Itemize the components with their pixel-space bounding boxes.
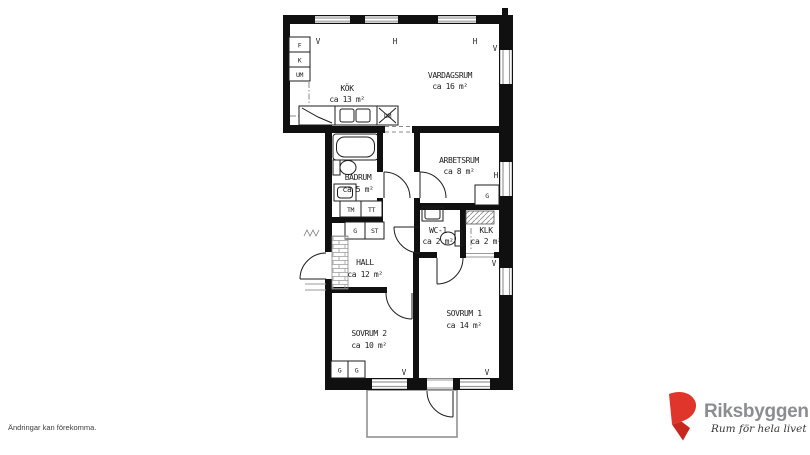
arbetsrum-wardrobe-label: G [485,192,489,200]
window-vardagsrum-1 [365,16,398,23]
room-area: ca 2 m² [471,237,502,246]
dryer-label: TT [368,206,376,214]
window-letter: V [493,44,498,53]
washer-label: TM [347,206,355,214]
kitchen-fixtures: F K UM DM [289,37,398,125]
door-sovrum1 [437,258,463,284]
entry-opening [325,252,333,279]
klk-shelf-icon [466,211,494,224]
window-vardagsrum-2 [438,16,476,23]
room-area: ca 14 m² [446,321,481,330]
window-letter: H [473,37,478,46]
stair-shaft-hatch [332,236,348,289]
room-name: KLK [479,226,493,235]
door-entry [300,253,326,290]
room-sovrum1: SOVRUM 1 ca 14 m² [446,309,482,330]
riksbyggen-logo-mark-icon [669,392,696,441]
hall-cleaning-closet-label: ST [371,227,379,235]
door-sovrum2 [386,293,412,319]
room-kok: KÖK ca 13 m² [329,83,364,104]
room-area: ca 12 m² [347,270,382,279]
fridge-label: F [298,42,302,50]
insulation-squiggle [304,230,319,236]
window-letter: H [393,37,398,46]
oven-label: UM [296,71,304,79]
floorplan-page: F K UM DM TM TT [0,0,810,455]
window-letter: V [316,37,321,46]
brand-tagline: Rum för hela livet [710,423,807,435]
room-name: KÖK [340,83,354,93]
sovrum2-wardrobe1-label: G [338,367,342,375]
window-letter: V [492,259,497,268]
window-letter: V [485,368,490,377]
wall-kitchen-south [283,125,332,133]
room-name: SOVRUM 2 [351,329,387,338]
disclaimer-text: Ändringar kan förekomma. [8,423,96,432]
window-arbetsrum-right [500,162,512,196]
room-area: ca 2 m² [423,237,454,246]
room-name: VARDAGSRUM [428,71,473,80]
room-name: WC-1 [429,226,447,235]
room-name: ARBETSRUM [439,156,479,165]
room-area: ca 5 m² [343,185,374,194]
door-badrum [384,172,410,198]
window-letter: V [402,368,407,377]
window-sovrum1-bottom [460,379,490,389]
room-vardagsrum: VARDAGSRUM ca 16 m² [428,71,473,91]
room-name: HALL [356,258,374,267]
bathtub-icon [333,134,378,160]
room-area: ca 16 m² [432,82,467,91]
window-sovrum2-bottom [372,379,407,389]
room-name: BADRUM [345,173,372,182]
floorplan-drawing: F K UM DM TM TT [0,0,810,455]
room-sovrum2: SOVRUM 2 ca 10 m² [351,329,387,350]
room-wc1: WC-1 ca 2 m² [423,226,454,246]
room-arbetsrum: ARBETSRUM ca 8 m² [439,156,479,176]
freezer-label: K [298,57,302,65]
room-area: ca 8 m² [444,167,475,176]
riksbyggen-logo: Riksbyggen Rum för hela livet [669,392,809,441]
wall-tick [502,8,508,16]
passage-vardagsrum-hall [385,125,412,135]
window-kok [315,16,350,23]
room-area: ca 13 m² [329,95,364,104]
window-sovrum1-right [500,268,512,295]
window-letter: H [494,171,499,180]
balcony [367,390,457,437]
room-area: ca 10 m² [351,341,386,350]
room-hall: HALL ca 12 m² [347,258,382,279]
brand-name: Riksbyggen [704,401,809,422]
hall-wardrobe-label: G [353,227,357,235]
room-klk: KLK ca 2 m² [471,226,502,246]
room-name: SOVRUM 1 [446,309,482,318]
window-vardagsrum-right [500,50,512,84]
door-arbetsrum [420,172,446,198]
sovrum2-wardrobe2-label: G [355,367,359,375]
